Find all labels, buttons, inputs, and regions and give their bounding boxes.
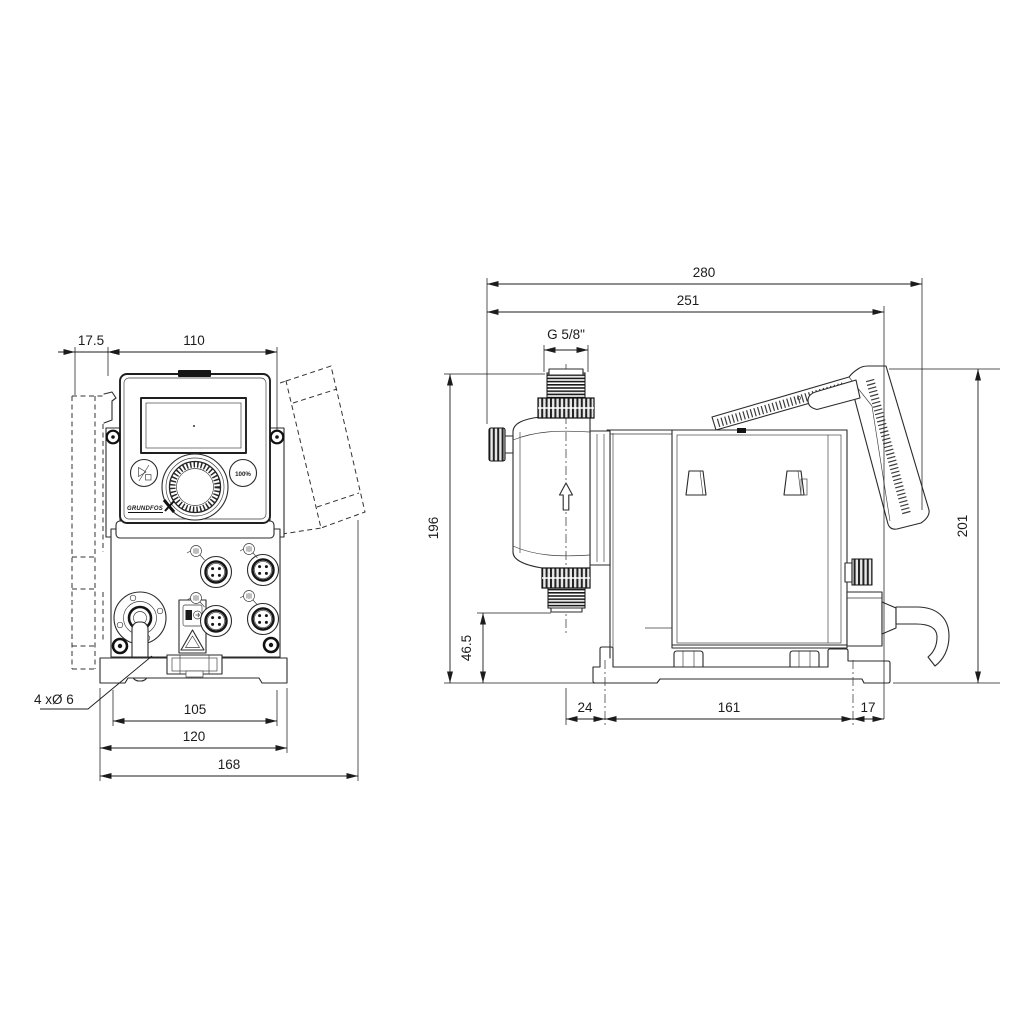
dim-label: 120 bbox=[183, 729, 206, 744]
m12-connector bbox=[248, 555, 279, 586]
lcd-display bbox=[141, 398, 246, 453]
flange-screw bbox=[271, 431, 284, 444]
dim-label: 110 bbox=[183, 333, 205, 348]
dim-label: 196 bbox=[426, 517, 441, 540]
hundred-percent-button: 100% bbox=[230, 460, 257, 487]
dim-label: 280 bbox=[693, 265, 716, 280]
hundred-percent-label: 100% bbox=[235, 471, 251, 478]
logo-text: GRUNDFOS bbox=[127, 506, 163, 512]
start-stop-button bbox=[131, 460, 158, 487]
dim-label: 17 bbox=[860, 700, 875, 715]
conduit-thread bbox=[852, 559, 872, 585]
control-panel: 100% GRUNDFOS bbox=[120, 370, 270, 523]
head-flange bbox=[590, 431, 610, 565]
corner-screw bbox=[113, 639, 127, 653]
dim-label: 17.5 bbox=[78, 333, 104, 348]
dim-label: G 5/8" bbox=[547, 327, 585, 342]
dim-label: 161 bbox=[718, 700, 741, 715]
m12-connector bbox=[201, 606, 232, 637]
gland-body bbox=[847, 592, 882, 646]
inlet-thread bbox=[548, 588, 585, 608]
dim-label: 24 bbox=[577, 700, 593, 715]
bottom-fitting bbox=[542, 568, 590, 612]
mounting-clamp bbox=[167, 655, 222, 677]
note-label: 4 xØ 6 bbox=[34, 692, 74, 707]
dim-label: 201 bbox=[955, 515, 970, 538]
box-top-tab bbox=[737, 428, 746, 433]
outlet-thread bbox=[547, 373, 585, 398]
corner-screw bbox=[264, 638, 278, 652]
panel-top-tab bbox=[178, 370, 211, 377]
pump-dimensional-drawing: 100% GRUNDFOS bbox=[0, 0, 1024, 1024]
dim-label: 46.5 bbox=[459, 635, 474, 661]
dim-label: 168 bbox=[218, 757, 241, 772]
m12-connector bbox=[201, 557, 232, 588]
flange-screw bbox=[107, 431, 120, 444]
belt-clip bbox=[686, 471, 706, 495]
dim-label: 251 bbox=[677, 293, 700, 308]
m12-connector bbox=[248, 604, 279, 635]
control-box bbox=[672, 430, 847, 648]
dim-label: 105 bbox=[184, 702, 207, 717]
